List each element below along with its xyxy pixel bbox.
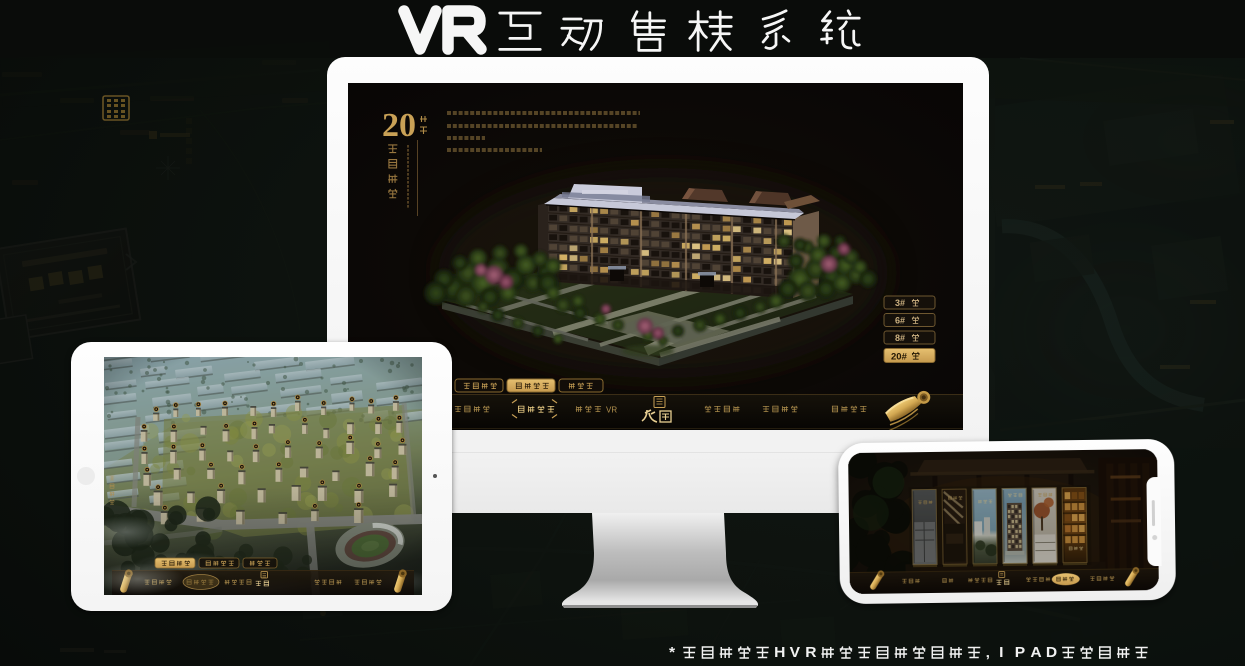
svg-text:*: *: [669, 644, 675, 661]
svg-text:VR: VR: [606, 406, 617, 415]
svg-text:‚: ‚: [986, 644, 990, 661]
svg-text:P: P: [1015, 644, 1025, 661]
svg-text:V: V: [790, 644, 801, 661]
svg-text:A: A: [1030, 644, 1041, 661]
svg-text:3#: 3#: [895, 298, 905, 308]
svg-text:D: D: [1046, 644, 1057, 661]
svg-text:8#: 8#: [895, 333, 905, 343]
svg-text:H: H: [774, 644, 785, 661]
svg-text:20: 20: [382, 107, 416, 144]
svg-text:I: I: [999, 644, 1003, 661]
svg-text:20#: 20#: [891, 352, 908, 363]
svg-text:6#: 6#: [895, 316, 905, 326]
svg-text:R: R: [805, 644, 816, 661]
